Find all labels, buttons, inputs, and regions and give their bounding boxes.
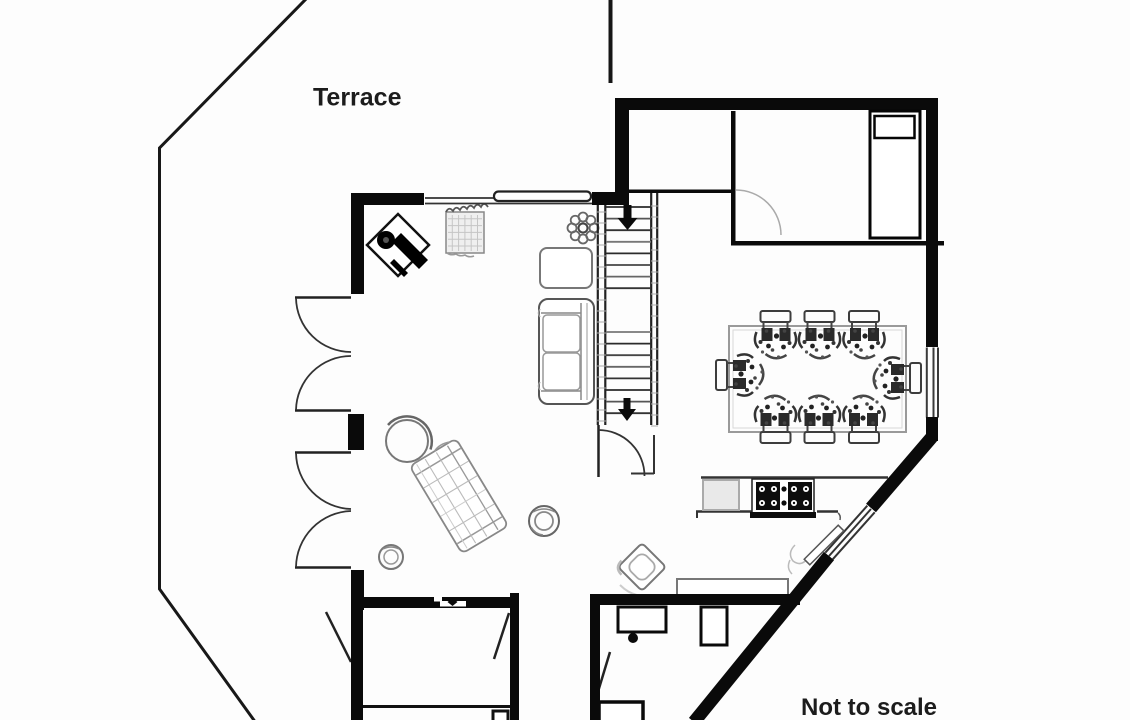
svg-text:Not to scale: Not to scale (801, 694, 937, 720)
svg-text:Terrace: Terrace (313, 84, 402, 112)
